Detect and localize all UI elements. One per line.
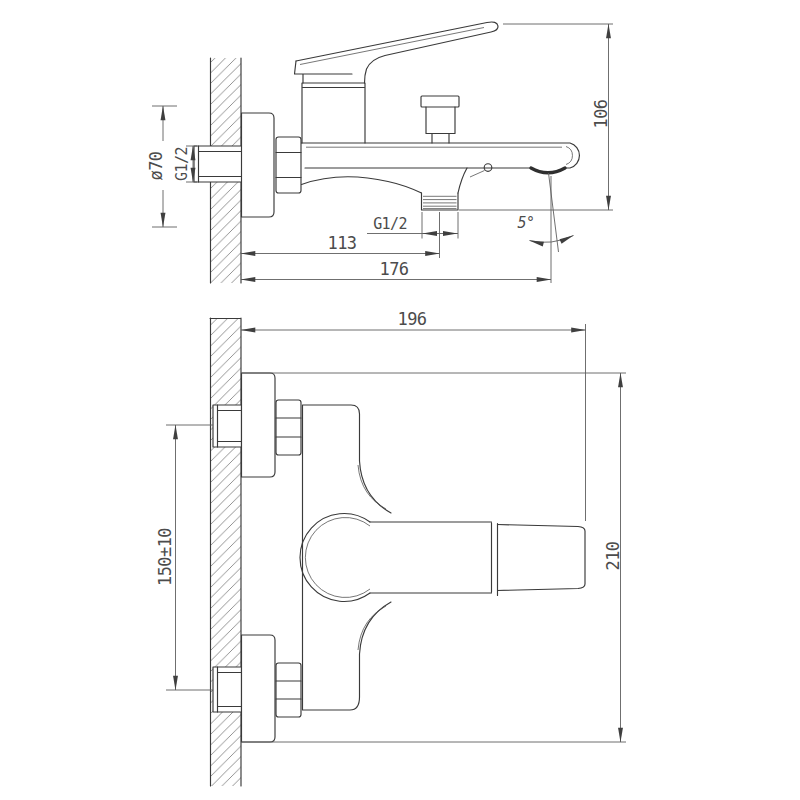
nut-body (276, 663, 301, 717)
angle-reference-lines (549, 173, 559, 283)
faucet-body (302, 83, 365, 143)
body-outline (303, 405, 360, 710)
dim-106: 106 (459, 24, 613, 210)
faucet-body-front (303, 405, 392, 710)
inlet-pipe (194, 146, 242, 182)
handle-pivot-arc-inner (305, 517, 370, 597)
dim-label-5deg: 5° (518, 214, 535, 232)
lever-inner-line (300, 28, 484, 65)
handle-grip (370, 522, 498, 596)
dim-label-106: 106 (591, 99, 611, 128)
handle-pivot-arc (300, 514, 370, 602)
escutcheon-upper (242, 373, 276, 477)
spout-underside (302, 168, 468, 193)
dim-176: 176 (241, 259, 551, 280)
dim-label-g12-outlet: G1/2 (373, 215, 407, 233)
technical-drawing: ø70 G1/2 113 176 G1/2 106 (0, 0, 800, 800)
diverter-cap (421, 96, 459, 107)
side-view (194, 22, 579, 283)
detail-leader (470, 171, 485, 178)
dim-113: 113 (241, 212, 440, 258)
body-flare-inner (358, 465, 386, 650)
aerator-icon (531, 168, 565, 173)
mounting-nut-upper (276, 400, 301, 455)
lever-base (295, 61, 353, 83)
dim-angle-5: 5° (518, 173, 574, 283)
dim-label-176: 176 (380, 259, 409, 279)
dim-label-210: 210 (603, 541, 623, 570)
front-view (210, 318, 585, 786)
spout-outline (302, 143, 580, 168)
diverter-stem (426, 107, 455, 143)
nut-body (276, 400, 301, 455)
spout (302, 143, 580, 193)
lever-handle (295, 22, 499, 83)
shower-outlet-thread (422, 193, 459, 210)
dim-150: 150±10 (155, 425, 213, 690)
dim-label-150: 150±10 (155, 528, 175, 586)
escutcheon-lower (242, 635, 276, 742)
dim-outlet-thread: G1/2 (367, 212, 458, 239)
body-flare-curves (360, 461, 392, 654)
mounting-nut-lower (276, 663, 301, 717)
dim-inlet-thread: G1/2 (173, 146, 197, 182)
dim-label-113: 113 (328, 233, 357, 253)
escutcheon (242, 113, 275, 217)
dim-label-196: 196 (398, 309, 427, 329)
dim-label-g12-inlet: G1/2 (173, 147, 191, 181)
angle-arc (530, 236, 574, 243)
dim-label-dia70: ø70 (146, 151, 166, 180)
thread-hatch (423, 196, 457, 208)
spout-inner-lines (306, 147, 572, 165)
wall-hatch (210, 318, 241, 786)
inlet-pipe-lower (213, 667, 242, 712)
nut-body (276, 137, 301, 193)
dim-ext-lines (459, 24, 613, 210)
mounting-nut (276, 137, 301, 193)
thread-outline (422, 193, 459, 210)
lever-handle-front (300, 514, 585, 602)
inlet-pipe-upper (213, 405, 242, 447)
handle-tip (498, 525, 586, 591)
diverter-knob (421, 96, 459, 143)
